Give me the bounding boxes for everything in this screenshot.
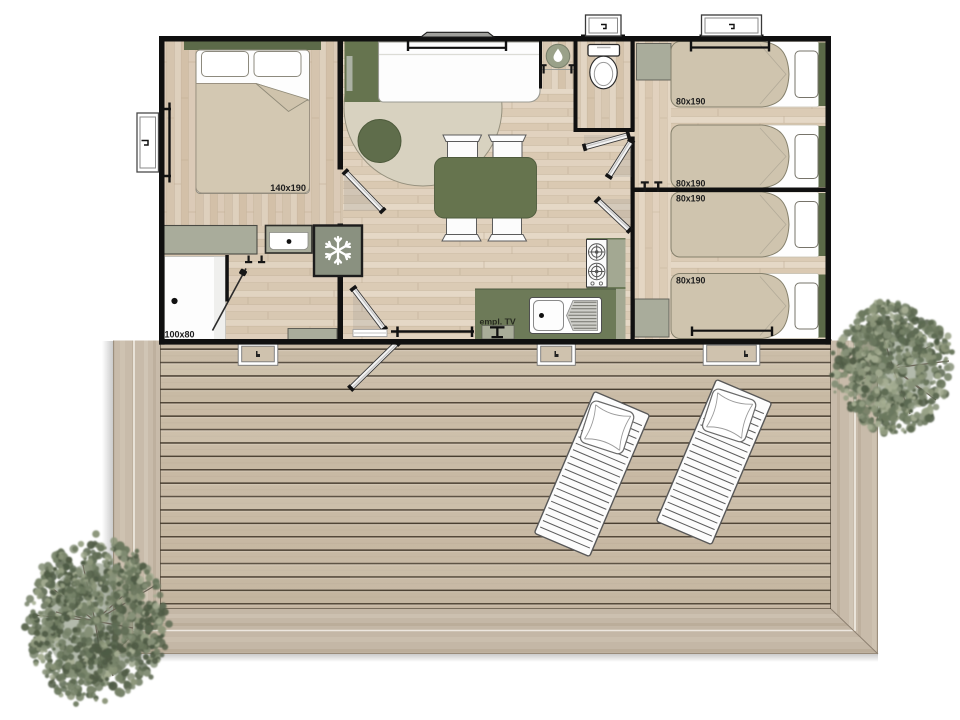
svg-text:100x80: 100x80 (165, 330, 195, 340)
svg-text:80x190: 80x190 (676, 179, 705, 189)
svg-text:80x190: 80x190 (676, 276, 705, 286)
svg-text:80x190: 80x190 (676, 194, 705, 204)
svg-text:80x190: 80x190 (676, 97, 705, 107)
svg-text:empl. TV: empl. TV (480, 317, 516, 327)
svg-text:140x190: 140x190 (270, 183, 306, 193)
